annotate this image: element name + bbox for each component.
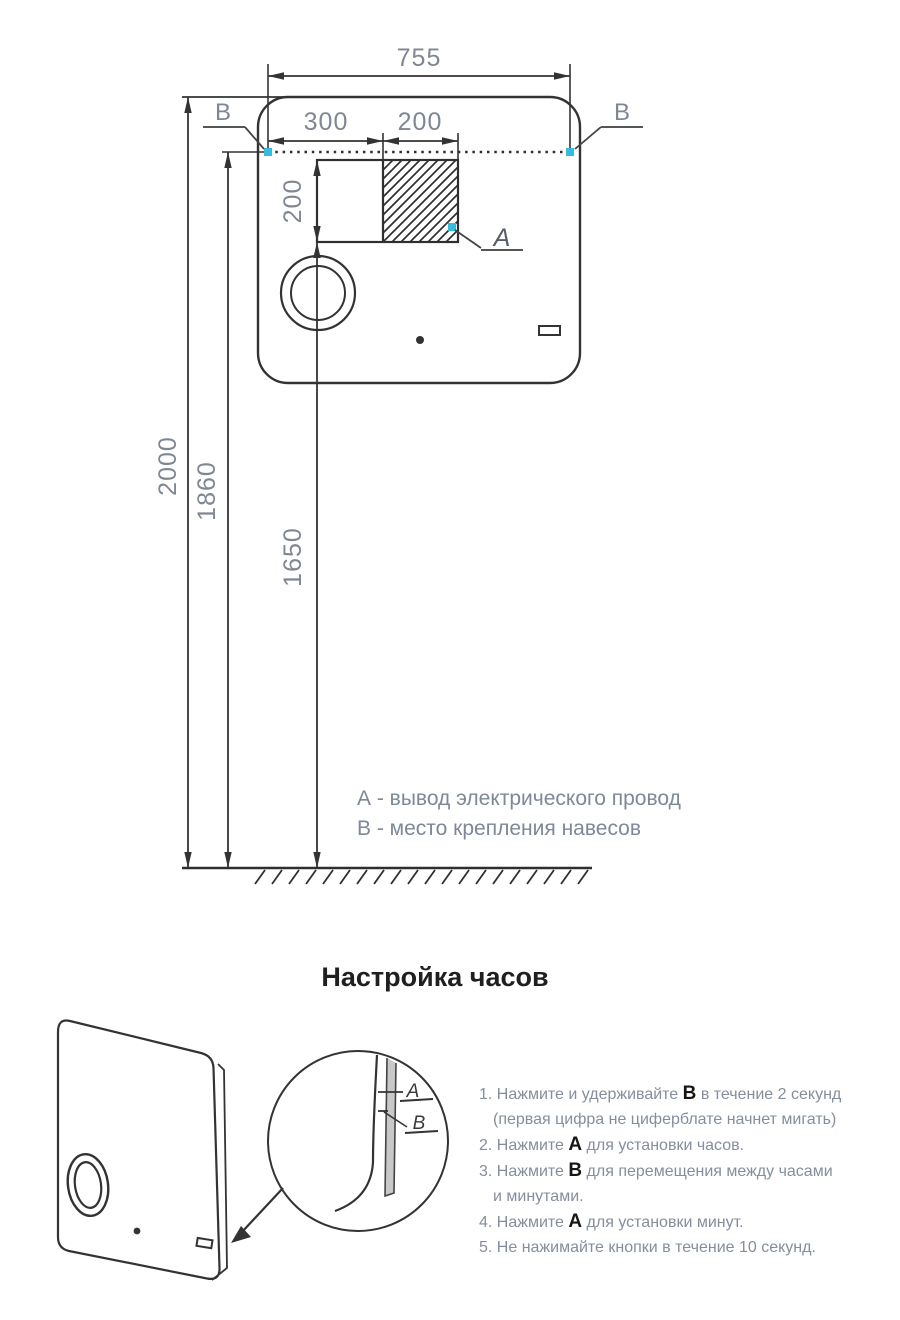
button-b-ref: B	[683, 1083, 697, 1104]
step-4: 4. Нажмите A для установки минут.	[479, 1209, 894, 1235]
button-a-ref: A	[568, 1211, 582, 1232]
floor-hatching	[255, 870, 588, 884]
manual-page: 755 300 200 B B	[0, 0, 900, 1320]
detail-mirror-edge	[335, 1055, 377, 1211]
button-a-ref: A	[568, 1134, 582, 1155]
clock-buttons-drawing: A B	[30, 1000, 470, 1310]
dim-width-755	[268, 64, 570, 150]
dim-outlet-height-label: 200	[279, 179, 307, 224]
dim-height-total: 2000	[154, 97, 192, 868]
hanger-point-right	[566, 148, 574, 156]
dim-height-outlet: 1650	[279, 242, 321, 868]
clock-instructions: 1. Нажмите и удерживайте B в течение 2 с…	[479, 1081, 894, 1260]
svg-text:2000: 2000	[154, 436, 182, 496]
detail-circle	[268, 1051, 448, 1231]
svg-text:B: B	[614, 99, 630, 126]
drawing-legend: А - вывод электрического провод В - мест…	[357, 784, 681, 844]
step-2: 2. Нажмите A для установки часов.	[479, 1132, 894, 1158]
magnifier-mirror	[281, 256, 355, 330]
dim-height-mount: 1860	[193, 152, 232, 868]
clock-section-title: Настройка часов	[0, 962, 870, 993]
step-3: 3. Нажмите B для перемещения между часам…	[479, 1158, 894, 1184]
step-1: 1. Нажмите и удерживайте B в течение 2 с…	[479, 1081, 894, 1107]
clock-display	[539, 326, 560, 335]
svg-text:A: A	[492, 224, 511, 252]
svg-text:1860: 1860	[193, 461, 221, 521]
dim-outlet-width-label: 200	[398, 108, 443, 136]
sensor-dot-small	[134, 1228, 141, 1235]
dim-offset-and-outlet	[268, 133, 458, 161]
label-b-right: B	[575, 99, 643, 149]
svg-text:1650: 1650	[279, 527, 307, 587]
legend-line-a: А - вывод электрического провод	[357, 784, 681, 814]
svg-text:A: A	[406, 1081, 420, 1102]
dim-width-label: 755	[397, 44, 442, 72]
floor-line	[182, 868, 592, 884]
sensor-dot	[416, 336, 424, 344]
svg-text:B: B	[215, 99, 231, 126]
hanger-point-left	[264, 148, 272, 156]
label-b-left: B	[203, 99, 264, 149]
mirror-perspective-outline	[58, 1020, 220, 1278]
button-b-ref: B	[568, 1160, 582, 1181]
step-1-note: (первая цифра не циферблате начнет мигат…	[479, 1107, 894, 1132]
step-3-cont: и минутами.	[479, 1184, 894, 1209]
detail-callout-arrow	[231, 1188, 283, 1243]
legend-line-b: В - место крепления навесов	[357, 814, 681, 844]
step-5: 5. Не нажимайте кнопки в течение 10 секу…	[479, 1235, 894, 1260]
label-a-outlet: A	[448, 223, 523, 252]
svg-text:B: B	[413, 1113, 426, 1134]
dim-offset-label: 300	[304, 108, 349, 136]
